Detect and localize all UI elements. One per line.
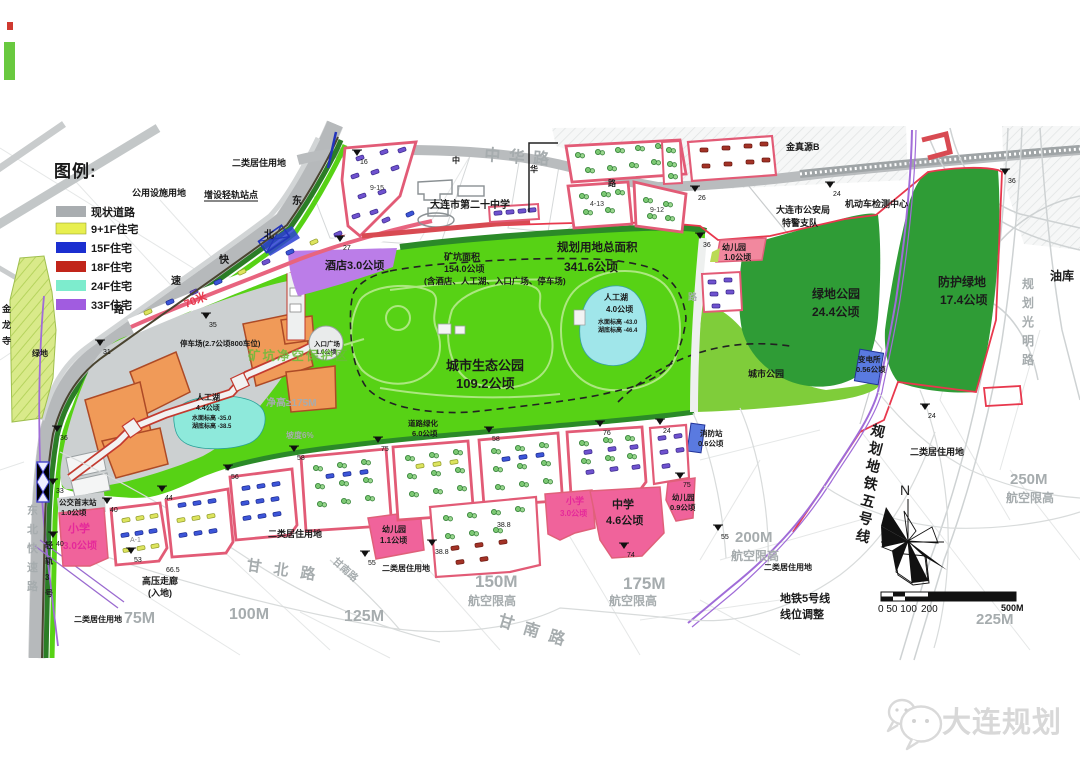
svg-text:31: 31 [103, 349, 111, 356]
svg-text:小学: 小学 [565, 495, 584, 506]
svg-text:路: 路 [27, 579, 39, 593]
svg-text:75: 75 [683, 482, 691, 489]
svg-text:24.4公顷: 24.4公顷 [812, 305, 859, 319]
svg-text:66.5: 66.5 [166, 567, 180, 574]
svg-text:33F住宅: 33F住宅 [91, 298, 132, 312]
svg-text:金: 金 [1, 303, 12, 314]
svg-text:光: 光 [1021, 314, 1034, 329]
svg-text:36: 36 [1008, 178, 1016, 185]
svg-text:100M: 100M [229, 606, 269, 623]
svg-text:0.9公顷: 0.9公顷 [670, 503, 696, 512]
svg-text:1.1公顷: 1.1公顷 [380, 536, 407, 545]
svg-text:明: 明 [1022, 334, 1034, 348]
svg-text:24: 24 [833, 191, 841, 198]
svg-text:38.8: 38.8 [435, 549, 449, 556]
svg-text:40: 40 [110, 507, 118, 514]
svg-text:二类居住用地: 二类居住用地 [74, 614, 122, 624]
svg-text:速: 速 [171, 274, 181, 287]
svg-text:15F住宅: 15F住宅 [91, 241, 132, 255]
svg-text:200M: 200M [735, 529, 773, 546]
svg-text:城市公园: 城市公园 [748, 368, 784, 379]
svg-text:75M: 75M [124, 610, 155, 627]
svg-text:幼儿园: 幼儿园 [722, 242, 746, 252]
svg-text:变电所: 变电所 [858, 354, 881, 364]
svg-text:公交首末站: 公交首末站 [59, 497, 97, 507]
svg-text:北: 北 [27, 522, 38, 536]
svg-text:人工湖: 人工湖 [196, 392, 220, 402]
svg-text:入口广场: 入口广场 [313, 339, 341, 348]
svg-text:快: 快 [218, 253, 230, 266]
svg-text:龙: 龙 [1, 319, 11, 330]
svg-text:40: 40 [56, 541, 64, 548]
svg-text:38.8: 38.8 [497, 522, 511, 529]
svg-text:道路绿化: 道路绿化 [408, 418, 438, 428]
svg-text:58: 58 [492, 436, 500, 443]
svg-text:消防站: 消防站 [700, 428, 723, 438]
svg-text:航空限高: 航空限高 [1006, 490, 1054, 505]
svg-text:路: 路 [1022, 352, 1035, 367]
svg-text:55: 55 [721, 534, 729, 541]
svg-text:18F住宅: 18F住宅 [91, 260, 132, 274]
svg-text:56: 56 [231, 474, 239, 481]
svg-text:55: 55 [368, 560, 376, 567]
svg-text:特警支队: 特警支队 [782, 217, 819, 228]
svg-text:1.0公顷: 1.0公顷 [724, 253, 751, 262]
svg-text:规: 规 [1022, 276, 1034, 291]
svg-text:150M: 150M [475, 572, 518, 591]
svg-text:24: 24 [928, 413, 936, 420]
svg-text:幼儿园: 幼儿园 [672, 492, 695, 502]
svg-text:路: 路 [688, 291, 698, 302]
svg-text:0.56公顷: 0.56公顷 [856, 365, 886, 374]
svg-text:规划用地总面积: 规划用地总面积 [557, 240, 638, 254]
svg-text:3.0公顷: 3.0公顷 [63, 540, 97, 552]
svg-text:矿坑面积: 矿坑面积 [444, 251, 480, 262]
svg-text:9-15: 9-15 [370, 185, 384, 192]
svg-text:36: 36 [60, 435, 68, 442]
svg-text:27: 27 [343, 245, 351, 252]
svg-text:35: 35 [209, 322, 217, 329]
svg-text:绿地公园: 绿地公园 [812, 286, 860, 301]
svg-text:44: 44 [165, 495, 173, 502]
svg-text:中: 中 [452, 155, 460, 165]
svg-text:湖底标高 -46.4: 湖底标高 -46.4 [598, 326, 638, 334]
svg-text:矿坑净空保护区: 矿坑净空保护区 [248, 348, 350, 363]
svg-text:划: 划 [1022, 295, 1034, 310]
svg-text:225M: 225M [976, 611, 1014, 628]
svg-text:二类居住用地: 二类居住用地 [764, 562, 812, 572]
svg-text:净高≥175M: 净高≥175M [266, 396, 317, 409]
svg-text:现状道路: 现状道路 [91, 205, 136, 219]
svg-text:4.4公顷: 4.4公顷 [196, 404, 220, 412]
svg-text:金真源B: 金真源B [785, 141, 820, 152]
svg-text:3: 3 [45, 573, 50, 582]
svg-text:500M: 500M [1001, 603, 1024, 613]
svg-text:酒店3.0公顷: 酒店3.0公顷 [325, 258, 384, 272]
svg-text:轻: 轻 [45, 540, 53, 550]
svg-text:76: 76 [603, 430, 611, 437]
svg-text:3.0公顷: 3.0公顷 [560, 509, 587, 518]
svg-text:二类居住用地: 二类居住用地 [382, 563, 430, 573]
svg-text:湖底标高 -38.5: 湖底标高 -38.5 [192, 422, 232, 430]
svg-text:油库: 油库 [1050, 268, 1074, 283]
svg-text:快: 快 [26, 541, 39, 555]
svg-text:轨: 轨 [45, 556, 53, 566]
svg-text:26: 26 [698, 195, 706, 202]
svg-text:125M: 125M [344, 608, 384, 625]
svg-text:华: 华 [530, 164, 538, 174]
svg-text:航空限高: 航空限高 [609, 593, 657, 608]
svg-text:0.6公顷: 0.6公顷 [698, 439, 724, 448]
svg-text:小学: 小学 [67, 521, 90, 535]
svg-text:4-13: 4-13 [590, 201, 604, 208]
svg-text:0 50 100: 0 50 100 [878, 604, 917, 615]
svg-text:200: 200 [921, 604, 938, 615]
svg-text:(入地): (入地) [148, 587, 172, 598]
svg-text:航空限高: 航空限高 [731, 548, 779, 563]
svg-text:大连市公安局: 大连市公安局 [776, 204, 830, 215]
svg-text:绿地: 绿地 [32, 348, 48, 358]
svg-text:东: 东 [292, 194, 302, 207]
svg-text:17.4公顷: 17.4公顷 [940, 293, 987, 307]
svg-text:4.6公顷: 4.6公顷 [606, 514, 643, 527]
svg-text:线位调整: 线位调整 [780, 607, 824, 621]
svg-text:341.6公顷: 341.6公顷 [564, 260, 618, 274]
svg-text:二类居住用地: 二类居住用地 [910, 446, 964, 457]
svg-text:高压走廊: 高压走廊 [142, 575, 178, 586]
svg-text:寺: 寺 [2, 335, 11, 346]
svg-text:号: 号 [45, 589, 53, 598]
svg-text:水面标高 -35.0: 水面标高 -35.0 [192, 414, 232, 422]
svg-text:33: 33 [56, 488, 64, 495]
svg-text:防护绿地: 防护绿地 [938, 274, 986, 289]
svg-text:175M: 175M [623, 574, 666, 593]
svg-text:4.0公顷: 4.0公顷 [606, 305, 633, 314]
svg-text:公用设施用地: 公用设施用地 [132, 187, 186, 198]
svg-text:城市生态公园: 城市生态公园 [446, 358, 524, 373]
svg-text:停车场(2.7公顷800车位): 停车场(2.7公顷800车位) [180, 338, 261, 348]
svg-text:16: 16 [360, 159, 368, 166]
svg-text:图例:: 图例: [54, 161, 97, 181]
svg-text:水面标高 -43.0: 水面标高 -43.0 [598, 318, 638, 326]
svg-text:58: 58 [297, 455, 305, 462]
svg-text:24: 24 [663, 428, 671, 435]
svg-text:9-12: 9-12 [650, 207, 664, 214]
svg-text:大连市第二十中学: 大连市第二十中学 [430, 198, 510, 211]
svg-text:二类居住用地: 二类居住用地 [232, 157, 286, 168]
svg-text:东: 东 [27, 503, 38, 517]
svg-text:航空限高: 航空限高 [468, 593, 516, 608]
svg-text:机动车检测中心: 机动车检测中心 [845, 198, 908, 209]
svg-text:中学: 中学 [612, 497, 634, 511]
svg-text:地铁5号线: 地铁5号线 [780, 591, 830, 605]
svg-text:9+1F住宅: 9+1F住宅 [91, 222, 138, 236]
svg-text:路: 路 [608, 178, 617, 188]
svg-text:75: 75 [381, 446, 389, 453]
svg-text:大连规划: 大连规划 [942, 706, 1062, 739]
svg-text:坡度6%: 坡度6% [286, 430, 314, 440]
svg-text:1.0公顷: 1.0公顷 [61, 508, 87, 517]
svg-text:人工湖: 人工湖 [604, 292, 628, 302]
svg-text:增设轻轨站点: 增设轻轨站点 [204, 189, 258, 200]
svg-text:A-1: A-1 [130, 537, 141, 544]
svg-text:北: 北 [264, 228, 274, 241]
svg-text:(含酒店、人工湖、入口广场、停车场): (含酒店、人工湖、入口广场、停车场) [424, 276, 566, 286]
svg-text:N: N [900, 482, 910, 498]
svg-text:53: 53 [134, 557, 142, 564]
svg-text:250M: 250M [1010, 471, 1048, 488]
svg-text:74: 74 [627, 552, 635, 559]
svg-text:154.0公顷: 154.0公顷 [444, 264, 485, 274]
svg-text:109.2公顷: 109.2公顷 [456, 376, 515, 391]
svg-text:速: 速 [27, 560, 38, 574]
svg-text:6.0公顷: 6.0公顷 [412, 429, 438, 438]
svg-text:24F住宅: 24F住宅 [91, 279, 132, 293]
svg-text:36: 36 [703, 242, 711, 249]
svg-text:幼儿园: 幼儿园 [382, 524, 406, 534]
svg-text:二类居住用地: 二类居住用地 [268, 528, 322, 539]
